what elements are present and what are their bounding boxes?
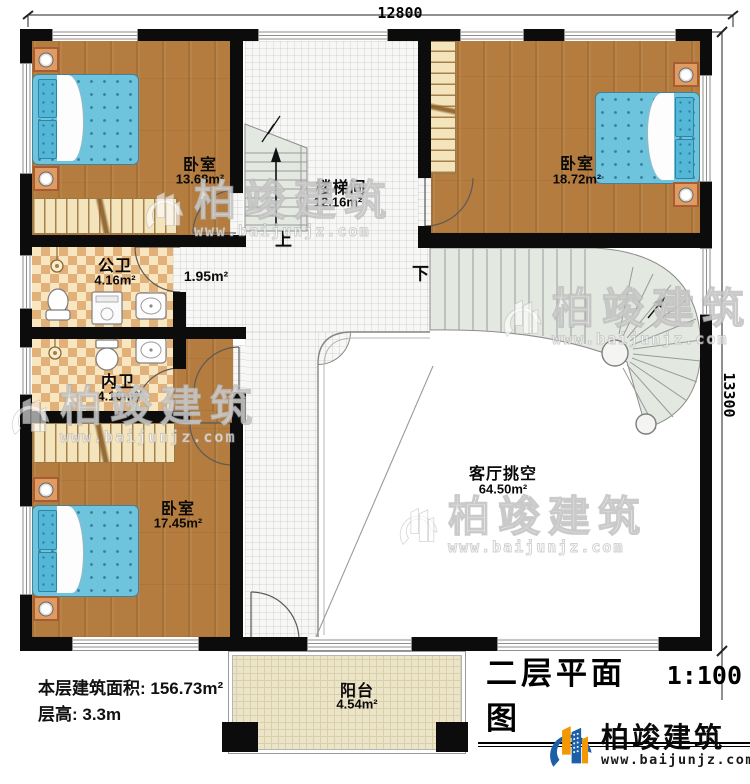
brand-url: www.baijunjz.com — [601, 752, 750, 768]
brand-logo: 柏竣建筑 www.baijunjz.com — [543, 718, 750, 774]
wall-bedroom-tr-bottom — [418, 233, 712, 248]
balcony-column-left — [222, 722, 258, 752]
hall-corner-fillet — [318, 332, 351, 365]
bed-sheet — [647, 93, 674, 180]
area-balcony: 4.54m² — [336, 697, 377, 712]
window-left-1 — [20, 63, 32, 174]
label-bedroom-tr: 卧室 — [560, 150, 594, 174]
wall-privatebath-bottom — [20, 411, 190, 423]
hallway-wood-floor — [186, 339, 233, 411]
label-stairs-down: 下 — [412, 260, 430, 285]
watermark-logo-icon — [498, 292, 544, 344]
floorplan-canvas: 12800 13300 卧室 13.68m² 楼梯间 12.16m² 上 卧室 … — [0, 0, 750, 784]
watermark-url: www.baijunjz.com — [552, 330, 750, 348]
wall-privatebath-bottom-stub — [232, 411, 246, 423]
bed-sheet — [57, 75, 84, 161]
window-bottom-1 — [72, 637, 199, 651]
window-left-2 — [20, 255, 32, 309]
lamp-icon — [39, 52, 54, 67]
area-living-void: 64.50m² — [479, 482, 527, 497]
bed-cushion — [38, 79, 57, 118]
wall-bedroom-tr-left — [418, 41, 431, 178]
wall-bath-divider — [20, 327, 246, 339]
nightstand — [33, 166, 59, 191]
watermark-url: www.baijunjz.com — [448, 538, 648, 556]
door-gap-bedroom-bl — [190, 411, 232, 423]
window-right-1 — [700, 75, 712, 182]
wall-bedroom-tl-bottom — [20, 235, 246, 247]
dimension-top: 12800 — [377, 4, 422, 22]
window-left-3 — [20, 347, 32, 395]
area-stairwell: 12.16m² — [314, 195, 362, 210]
info-floor-height: 层高: 3.3m — [38, 700, 121, 725]
area-bedroom-tr: 18.72m² — [553, 172, 601, 187]
lamp-icon — [39, 482, 54, 497]
area-corridor: 1.95m² — [184, 268, 228, 284]
logo-tower-blue — [572, 728, 582, 764]
watermark: 柏竣建筑 www.baijunjz.com — [498, 288, 750, 348]
lamp-icon — [679, 187, 694, 202]
bed-sheet — [57, 506, 84, 593]
logo-block-orange — [582, 736, 588, 763]
nightstand — [673, 62, 699, 87]
wall-bath-vertical-b — [173, 339, 186, 369]
logo-tower-orange — [562, 726, 571, 755]
closet-bedroom-tr — [428, 41, 456, 174]
bed-cushion — [675, 139, 694, 179]
door-gap-private-bath — [173, 369, 186, 411]
nightstand — [33, 477, 59, 502]
area-bedroom-bl: 17.45m² — [154, 516, 202, 531]
dimension-right: 13300 — [720, 372, 738, 417]
wall-bath-vertical-a — [173, 292, 186, 327]
watermark-text: 柏竣建筑 — [448, 496, 648, 538]
bed-cushion — [38, 510, 57, 550]
curved-staircase — [430, 248, 701, 434]
closet-bedroom-bl — [32, 423, 175, 463]
lamp-icon — [39, 171, 54, 186]
bed-bedroom-tl — [32, 74, 139, 165]
door-gap-bedroom-tr — [418, 178, 431, 226]
window-top-2 — [258, 29, 388, 41]
window-top-4 — [564, 29, 676, 41]
bed-bedroom-bl — [32, 505, 139, 597]
wall-bedroom-bl-right — [230, 423, 243, 637]
nightstand — [33, 47, 59, 72]
info-floor-area: 本层建筑面积: 156.73m² — [38, 674, 223, 699]
watermark-logo-icon — [394, 500, 440, 552]
window-bottom-2 — [307, 637, 412, 651]
window-left-4 — [20, 506, 32, 595]
nightstand — [673, 182, 699, 207]
window-top-3 — [460, 29, 524, 41]
lamp-icon — [39, 601, 54, 616]
label-living-void: 客厅挑空 — [469, 460, 537, 484]
wall-hallway-stub — [233, 392, 246, 411]
lamp-icon — [679, 67, 694, 82]
brand-name: 柏竣建筑 — [601, 724, 750, 752]
watermark: 柏竣建筑 www.baijunjz.com — [394, 496, 648, 556]
bed-cushion — [675, 97, 694, 137]
brand-text: 柏竣建筑 www.baijunjz.com — [601, 724, 750, 768]
brand-logo-icon — [543, 718, 595, 774]
door-gap-bedroom-tl — [230, 193, 243, 235]
bed-cushion — [38, 552, 57, 592]
wall-bedroom-tl-right — [230, 41, 243, 193]
void-boundary — [316, 332, 433, 637]
closet-bedroom-tl — [32, 198, 177, 234]
corridor-floor — [186, 247, 245, 327]
watermark-text: 柏竣建筑 — [552, 288, 750, 330]
area-bedroom-tl: 13.68m² — [176, 172, 224, 187]
door-gap-hallway — [233, 345, 246, 392]
hall-band-floor — [245, 233, 430, 332]
window-right-2 — [700, 248, 712, 315]
window-top-1 — [52, 29, 138, 41]
bed-bedroom-tr — [595, 92, 700, 184]
bed-cushion — [38, 120, 57, 159]
area-private-bath: 4.16m² — [97, 389, 138, 404]
nightstand — [33, 596, 59, 621]
label-stairs-up: 上 — [275, 226, 293, 251]
area-public-bath: 4.16m² — [94, 273, 135, 288]
hall-strip-floor — [245, 332, 318, 637]
balcony-column-right — [436, 722, 468, 752]
plan-scale: 1:100 — [667, 661, 742, 690]
